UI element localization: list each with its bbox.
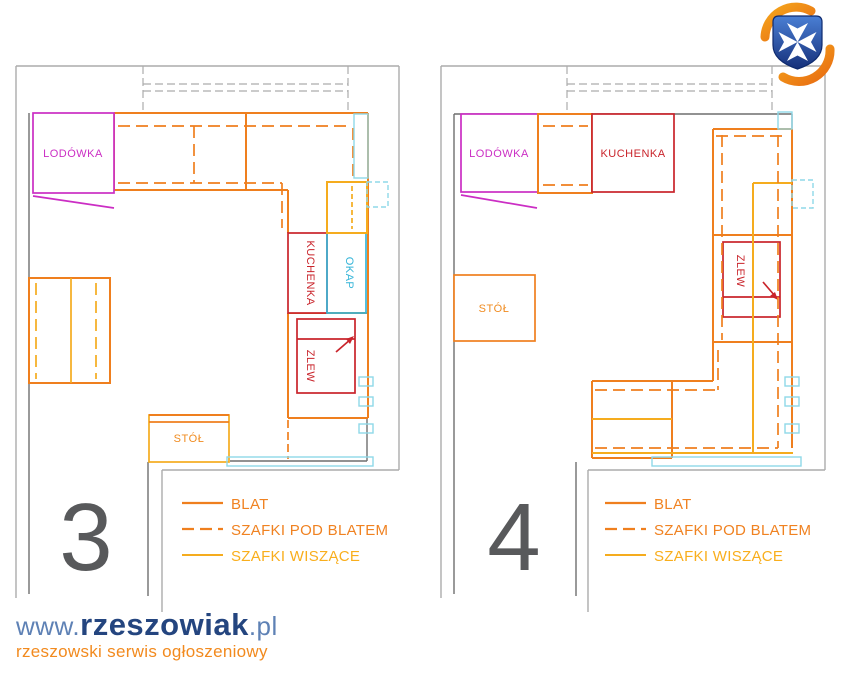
plan3-left-cabinet: [29, 278, 110, 383]
plan3-socket-2: [359, 397, 373, 406]
plan3-legend: BLAT SZAFKI POD BLATEM SZAFKI WISZĄCE: [182, 496, 388, 565]
plan4: LODÓWKA KUCHENKA ZLEW STÓŁ 4 BLAT SZAFKI…: [441, 66, 825, 612]
plan4-legend-blat-label: BLAT: [654, 496, 692, 513]
site-tagline: rzeszowski serwis ogłoszeniowy: [16, 643, 278, 660]
plan4-legend-szafki-pod-label: SZAFKI POD BLATEM: [654, 522, 811, 539]
plan4-baseboard-strip: [652, 457, 801, 466]
kitchen-plans-image: LODÓWKA KUCHENKA OKAP ZLEW STÓŁ 3 BLAT S…: [0, 0, 843, 675]
plan4-table-label: STÓŁ: [479, 302, 510, 315]
plan3: LODÓWKA KUCHENKA OKAP ZLEW STÓŁ 3 BLAT S…: [16, 66, 399, 612]
plan4-hanging-cabinets: [592, 183, 793, 453]
plan3-legend-wiszace-label: SZAFKI WISZĄCE: [231, 548, 360, 565]
plan3-fridge-door-swing: [33, 196, 114, 208]
plan3-legend-blat-label: BLAT: [231, 496, 269, 513]
plan3-table-label: STÓŁ: [174, 432, 205, 445]
plan3-window: [143, 66, 348, 110]
plan4-fridge-door-swing: [461, 195, 537, 208]
site-url-name: rzeszowiak: [80, 607, 249, 642]
plan4-window: [567, 66, 772, 110]
plan3-legend-szafki-pod-label: SZAFKI POD BLATEM: [231, 522, 388, 539]
plan4-sink-label: ZLEW: [734, 255, 746, 288]
plan3-socket-1: [359, 377, 373, 386]
plan3-stove-label: KUCHENKA: [304, 240, 316, 305]
rzeszowiak-logo: [757, 2, 839, 86]
plan4-fridge: [461, 114, 538, 208]
plan4-fridge-label: LODÓWKA: [469, 147, 529, 160]
plan3-socket-3: [359, 424, 373, 433]
plan4-legend-wiszace-label: SZAFKI WISZĄCE: [654, 548, 783, 565]
floor-plans-drawing: LODÓWKA KUCHENKA OKAP ZLEW STÓŁ 3 BLAT S…: [0, 0, 843, 675]
plan3-counter-blat: [114, 113, 368, 418]
plan3-hood-label: OKAP: [343, 257, 355, 290]
site-url: www.rzeszowiak.pl: [16, 609, 278, 640]
plan4-variant-number: 4: [487, 484, 540, 591]
plan3-hanging-cabinets: [327, 182, 367, 233]
site-url-www: www.: [16, 611, 80, 641]
plan3-hood-duct: [354, 114, 368, 178]
plan4-faucet-arrowhead: [770, 292, 778, 300]
plan3-variant-number: 3: [59, 484, 112, 591]
plan3-sink-label: ZLEW: [304, 350, 316, 383]
plan4-wall-fixture-dashed: [792, 180, 813, 208]
plan3-fridge-label: LODÓWKA: [43, 147, 103, 160]
plan4-fixtures: [652, 112, 813, 466]
site-url-tld: .pl: [249, 611, 278, 641]
plan3-wall-fixture-dashed: [367, 182, 388, 207]
plan4-sink: [723, 242, 780, 317]
plan4-sink-box: [723, 242, 780, 317]
site-branding: www.rzeszowiak.pl rzeszowski serwis ogło…: [16, 609, 278, 660]
plan4-legend: BLAT SZAFKI POD BLATEM SZAFKI WISZĄCE: [605, 496, 811, 565]
plan4-top-cabinet: [538, 114, 592, 193]
plan4-stove-label: KUCHENKA: [600, 148, 665, 160]
plan3-fridge: [33, 113, 114, 208]
